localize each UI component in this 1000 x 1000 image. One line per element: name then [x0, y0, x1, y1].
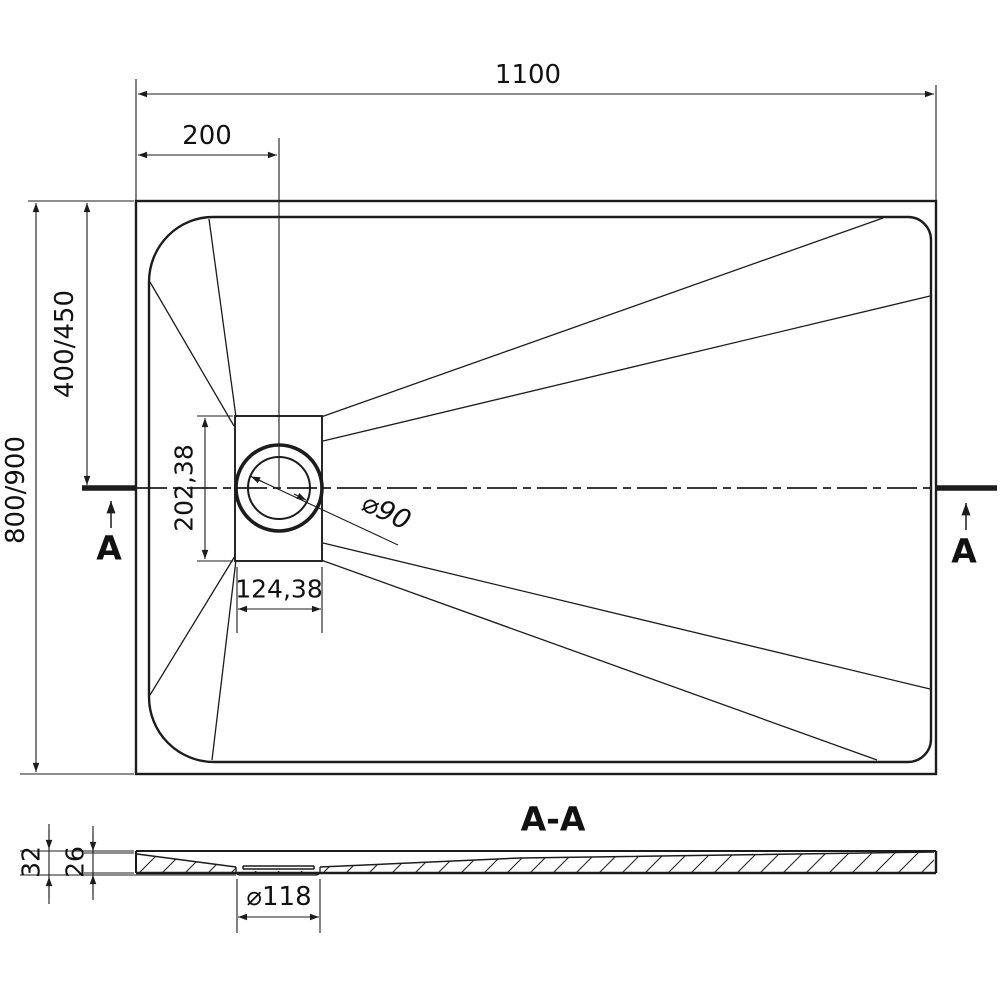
floor-fold-lines — [150, 218, 930, 760]
dim-text-1100: 1100 — [495, 60, 561, 90]
dim-text-124-38: 124,38 — [235, 575, 322, 604]
drain-seat — [243, 866, 314, 869]
dim-text-32: 32 — [17, 846, 46, 878]
dim-text-800-900: 800/900 — [1, 436, 31, 544]
tray-inner-rim — [149, 217, 931, 762]
dim-text-d118: ⌀118 — [246, 882, 311, 912]
plan-view: A A 1100 — [1, 60, 997, 774]
fold-line-bottom-right-b — [321, 560, 877, 760]
section-view: A-A — [17, 800, 937, 934]
dim-text-26: 26 — [61, 846, 90, 878]
technical-drawing-page: A A 1100 — [0, 0, 1000, 1000]
leader-arrow-d90-upper — [251, 477, 263, 483]
section-label-right: A — [951, 532, 977, 571]
fold-line-bottom-right-a — [323, 543, 930, 689]
dim-text-400-450: 400/450 — [50, 290, 80, 398]
section-label-left: A — [96, 529, 122, 568]
fold-line-bottom-left-b — [212, 560, 236, 760]
dimension-lines — [36, 94, 934, 772]
shower-tray-drawing: A A 1100 — [0, 0, 1000, 1000]
dim-text-200: 200 — [182, 121, 232, 151]
dim-text-202-38: 202,38 — [170, 444, 199, 531]
extension-lines — [20, 79, 936, 774]
section-title: A-A — [521, 800, 586, 839]
fold-line-top-left-b — [150, 282, 234, 426]
fold-line-top-right-a — [321, 218, 883, 417]
fold-line-top-right-b — [323, 296, 930, 441]
fold-line-top-left-a — [209, 219, 236, 417]
